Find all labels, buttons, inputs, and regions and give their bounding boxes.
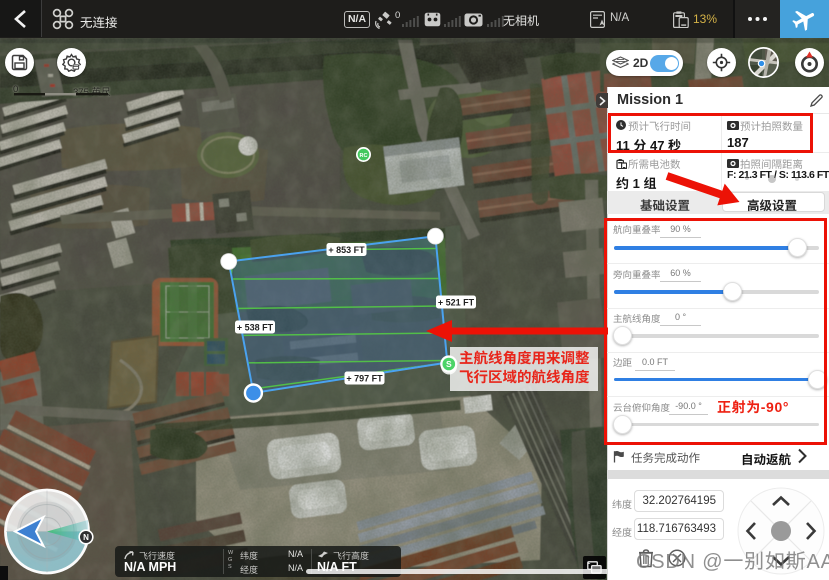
svg-text:+ 521 FT: + 521 FT [438, 298, 475, 308]
svg-text:+ 797 FT: + 797 FT [346, 374, 383, 384]
svg-text:RC: RC [360, 153, 368, 159]
svg-text:N: N [83, 533, 89, 542]
svg-text:S: S [446, 359, 452, 369]
svg-text:+ 853 FT: + 853 FT [328, 245, 365, 255]
svg-text:+ 538 FT: + 538 FT [237, 323, 274, 333]
